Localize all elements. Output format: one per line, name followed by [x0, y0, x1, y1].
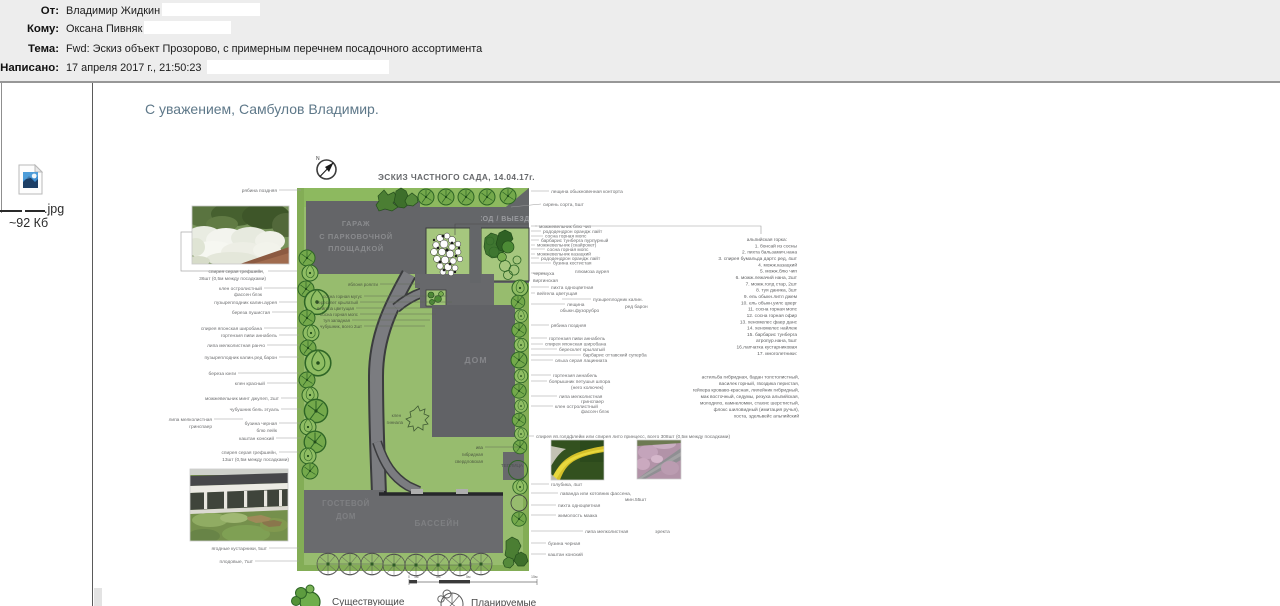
svg-text:сосна горная мугус: сосна горная мугус: [323, 294, 363, 299]
svg-text:ДОМ: ДОМ: [336, 512, 356, 521]
svg-text:ПЛОЩАДКОЙ: ПЛОЩАДКОЙ: [328, 244, 384, 253]
svg-text:клен остролистный: клен остролистный: [219, 285, 262, 292]
svg-text:3. спирея бумальда дартс ред,: 3. спирея бумальда дартс ред, 4шт: [718, 256, 797, 262]
svg-text:13. хеномелес фаер данс: 13. хеномелес фаер данс: [740, 320, 798, 326]
svg-text:клен красный: клен красный: [235, 380, 266, 387]
svg-text:каштан конский: каштан конский: [548, 551, 583, 558]
svg-text:1. бонсай из сосны: 1. бонсай из сосны: [755, 243, 798, 250]
svg-text:яблоня роялти: яблоня роялти: [348, 282, 379, 287]
svg-text:спирея японская широбана: спирея японская широбана: [201, 326, 262, 332]
svg-text:сирень сорта, 5шт: сирень сорта, 5шт: [543, 202, 585, 208]
svg-text:пузыреплодник калин.аурея: пузыреплодник калин.аурея: [214, 301, 277, 306]
svg-text:атропур.нана, 5шт: атропур.нана, 5шт: [756, 338, 798, 344]
svg-text:ред барон: ред барон: [625, 304, 648, 310]
svg-text:спирея яп.голдфлейм или спирея: спирея яп.голдфлейм или спирея лито прин…: [536, 433, 730, 440]
svg-text:липа мелколистная: липа мелколистная: [169, 418, 213, 423]
svg-text:Существующие: Существующие: [332, 597, 405, 606]
svg-text:туя западная: туя западная: [323, 318, 351, 323]
svg-text:каштан конский: каштан конский: [239, 435, 274, 442]
svg-text:12. сосна горная офир: 12. сосна горная офир: [747, 313, 798, 319]
svg-text:5м: 5м: [466, 575, 471, 579]
svg-text:8. туя даника, 3шт: 8. туя даника, 3шт: [756, 288, 798, 294]
svg-text:жимолость маака: жимолость маака: [558, 514, 598, 519]
svg-text:береза юнги: береза юнги: [209, 371, 237, 377]
svg-text:фассен блэк: фассен блэк: [581, 409, 610, 415]
svg-text:блю лейк: блю лейк: [256, 427, 277, 434]
svg-text:ива: ива: [476, 445, 484, 450]
svg-text:бузина костистая: бузина костистая: [553, 261, 592, 267]
svg-text:15м: 15м: [531, 575, 538, 579]
svg-text:ТЕПЛИЦА: ТЕПЛИЦА: [501, 463, 524, 468]
svg-text:молодило, камнеломки, стахис ш: молодило, камнеломки, стахис шерстистый,: [700, 400, 799, 407]
svg-text:мин.55шт: мин.55шт: [625, 497, 647, 503]
svg-text:пузыреплодник калин.: пузыреплодник калин.: [593, 298, 643, 303]
svg-text:5. можж.блю чип: 5. можж.блю чип: [760, 269, 797, 275]
svg-text:клен: клен: [392, 413, 402, 418]
svg-text:36шт (0,5м между посадками): 36шт (0,5м между посадками): [199, 276, 266, 282]
svg-text:вейгела цветущая: вейгела цветущая: [317, 306, 355, 311]
svg-text:4. можж.казацкий: 4. можж.казацкий: [758, 262, 797, 269]
svg-text:лещина: лещина: [567, 303, 585, 308]
svg-text:вейгела цветущая: вейгела цветущая: [537, 290, 578, 297]
svg-text:бузина черная: бузина черная: [548, 541, 581, 547]
svg-text:виргинская: виргинская: [533, 279, 558, 284]
svg-text:василек горный, гвоздика перис: василек горный, гвоздика перистая,: [719, 380, 799, 387]
svg-text:спирея японская широбана: спирея японская широбана: [545, 342, 606, 348]
svg-text:ягодные кустарники, 5шт: ягодные кустарники, 5шт: [211, 546, 267, 552]
svg-text:гортензия пиви аннабель: гортензия пиви аннабель: [549, 336, 606, 342]
svg-text:боярышник петушья шпора: боярышник петушья шпора: [549, 379, 611, 385]
svg-text:бузина черная: бузина черная: [245, 421, 278, 427]
svg-text:барбарис оттавский суперба: барбарис оттавский суперба: [583, 352, 647, 359]
svg-text:бересклет крылатый: бересклет крылатый: [316, 300, 359, 305]
svg-text:спирея серая грефшейн,: спирея серая грефшейн,: [209, 268, 264, 275]
svg-text:плюмоза аурея: плюмоза аурея: [575, 270, 609, 275]
svg-text:ГОСТЕВОЙ: ГОСТЕВОЙ: [322, 499, 370, 508]
svg-text:гиннала: гиннала: [387, 420, 404, 425]
svg-text:чубушник, всего 2шт: чубушник, всего 2шт: [320, 324, 362, 329]
svg-text:2. пихта бальзамич.нана: 2. пихта бальзамич.нана: [742, 250, 797, 256]
svg-text:15. барбарис тунберга: 15. барбарис тунберга: [747, 332, 797, 338]
svg-text:ДОМ: ДОМ: [465, 355, 488, 365]
svg-text:9. ель обыкн.литл джем: 9. ель обыкн.литл джем: [744, 294, 797, 300]
svg-text:спирея серая грефшейн,: спирея серая грефшейн,: [222, 449, 277, 456]
svg-text:рябина поздняя: рябина поздняя: [551, 323, 587, 329]
svg-text:рябина поздняя: рябина поздняя: [242, 188, 278, 194]
svg-text:свердловская: свердловская: [455, 459, 484, 464]
svg-text:сосна горная мопс: сосна горная мопс: [320, 312, 359, 317]
svg-text:астильба гибридная, бадан толс: астильба гибридная, бадан толстолистный,: [702, 374, 799, 381]
svg-text:фассен блэк: фассен блэк: [234, 292, 263, 298]
svg-text:флокс шиловидный (имитация руч: флокс шиловидный (имитация ручья),: [714, 406, 799, 413]
svg-text:0: 0: [408, 575, 410, 579]
svg-text:13шт (0,5м между посадками): 13шт (0,5м между посадками): [222, 457, 289, 463]
svg-text:1м: 1м: [414, 575, 419, 579]
svg-text:(него колючек): (него колючек): [571, 385, 604, 391]
svg-text:БАССЕЙН: БАССЕЙН: [414, 519, 459, 528]
svg-text:ГАРАЖ: ГАРАЖ: [342, 219, 370, 228]
svg-text:клен остролистный: клен остролистный: [555, 403, 598, 410]
svg-text:Планируемые: Планируемые: [471, 598, 537, 606]
svg-text:10. ель обыкн.уилс цверг: 10. ель обыкн.уилс цверг: [741, 301, 797, 307]
svg-text:7. можж.голд стар, 2шт: 7. можж.голд стар, 2шт: [746, 282, 798, 288]
svg-text:хоста, эдельвейс альпийский: хоста, эдельвейс альпийский: [734, 413, 800, 420]
svg-text:пихта одноцветная: пихта одноцветная: [558, 504, 601, 509]
svg-text:гортензия аннабель: гортензия аннабель: [553, 373, 598, 379]
svg-text:гибридная: гибридная: [462, 452, 484, 457]
svg-text:можжевельник минт джулеп, 2шт: можжевельник минт джулеп, 2шт: [205, 396, 280, 402]
svg-text:мак восточный, седумы, резуха: мак восточный, седумы, резуха альпийская…: [701, 393, 799, 400]
svg-text:пихта одноцветная: пихта одноцветная: [551, 286, 594, 291]
svg-text:бересклет крылатый: бересклет крылатый: [559, 346, 605, 353]
svg-text:14. хеномелес найлеж: 14. хеномелес найлеж: [747, 325, 798, 332]
svg-text:лаванда или котовник фассена,: лаванда или котовник фассена,: [560, 491, 631, 497]
svg-text:17. многолетники:: 17. многолетники:: [757, 351, 797, 357]
svg-text:3м: 3м: [436, 575, 441, 579]
svg-text:плодовые, 7шт: плодовые, 7шт: [219, 559, 253, 565]
svg-text:липа мелколистная: липа мелколистная: [585, 530, 629, 535]
svg-text:ЭСКИЗ ЧАСТНОГО САДА, 14.04.17г: ЭСКИЗ ЧАСТНОГО САДА, 14.04.17г.: [378, 172, 535, 182]
svg-text:лещина обыкновенная конторта: лещина обыкновенная конторта: [551, 189, 623, 195]
svg-text:эректа: эректа: [655, 530, 670, 535]
svg-text:11. сосна горная мопс: 11. сосна горная мопс: [748, 307, 798, 313]
svg-text:береза пушистая: береза пушистая: [232, 310, 271, 316]
svg-text:гортензия пиви аннабель: гортензия пиви аннабель: [221, 333, 278, 339]
svg-text:обыкн.фузорубро: обыкн.фузорубро: [560, 308, 600, 314]
svg-text:N: N: [316, 156, 320, 162]
svg-text:пузыреплодник калин.ред барон: пузыреплодник калин.ред барон: [204, 355, 277, 361]
svg-text:С ПАРКОВОЧНОЙ: С ПАРКОВОЧНОЙ: [319, 232, 393, 241]
svg-text:чубушник бель этуаль: чубушник бель этуаль: [230, 407, 280, 413]
svg-text:16.лапчатка кустарниковая: 16.лапчатка кустарниковая: [737, 345, 798, 351]
svg-text:гейхера кроваво-красная, лилей: гейхера кроваво-красная, лилейник гибрид…: [693, 387, 799, 394]
svg-text:альпийская горка:: альпийская горка:: [747, 236, 787, 243]
svg-text:голубика, 4шт: голубика, 4шт: [551, 482, 583, 488]
svg-text:гринспаер: гринспаер: [189, 425, 212, 430]
svg-text:липа мелколистная ранчо: липа мелколистная ранчо: [207, 344, 265, 349]
svg-text:6. можж.лежачий нана, 2шт: 6. можж.лежачий нана, 2шт: [736, 274, 798, 281]
svg-text:ольха серая лациниата: ольха серая лациниата: [555, 359, 607, 364]
